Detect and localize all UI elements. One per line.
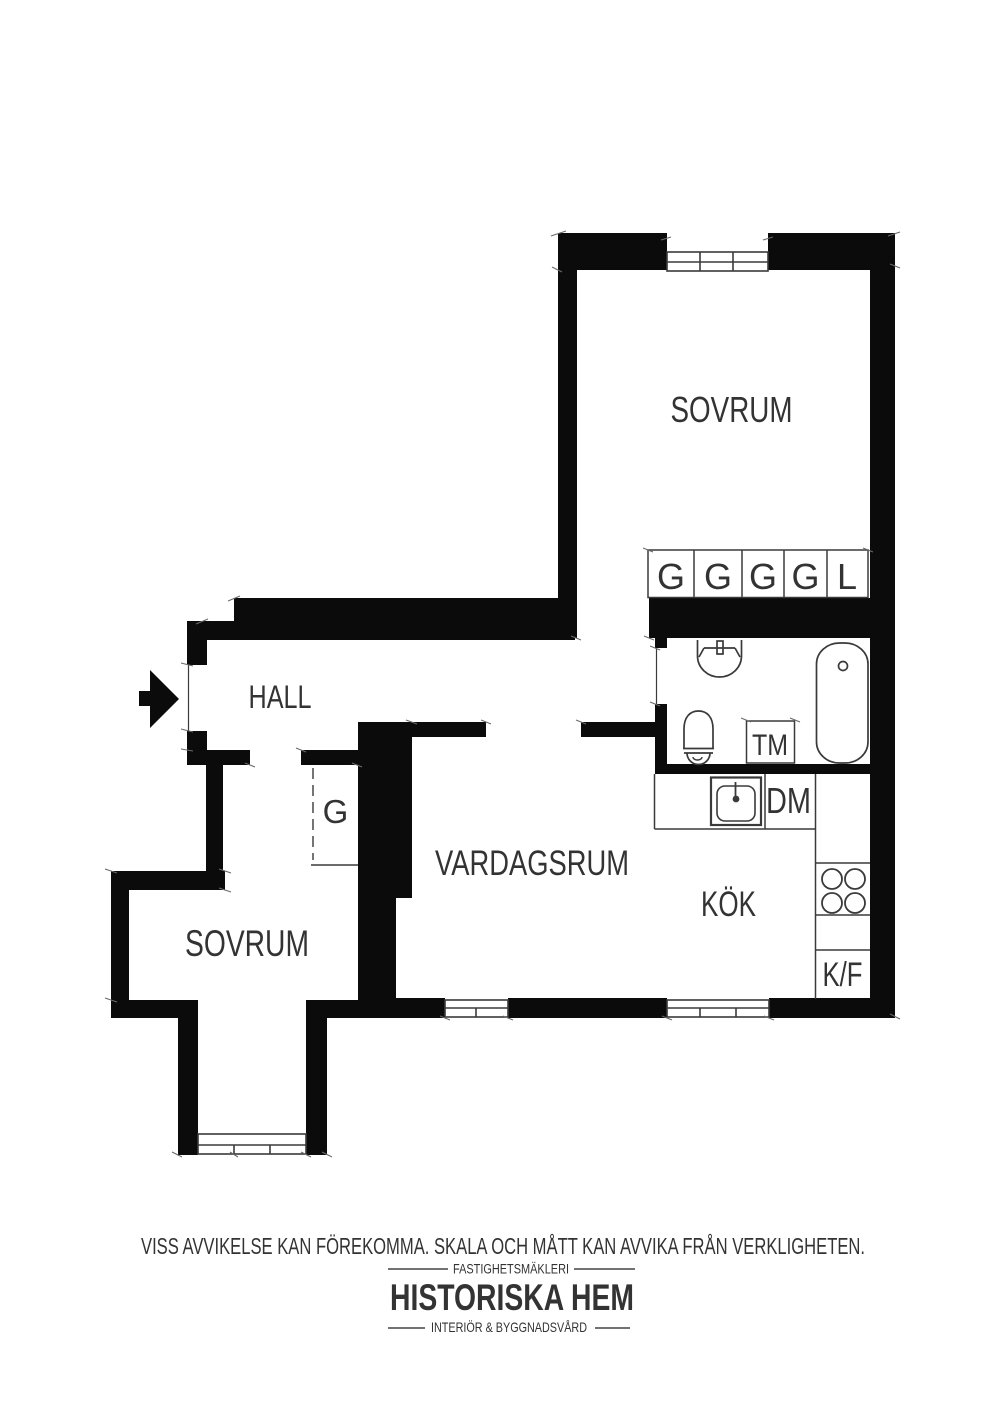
svg-text:L: L (837, 556, 857, 597)
svg-text:INTERIÖR & BYGGNADSVÅRD: INTERIÖR & BYGGNADSVÅRD (431, 1318, 587, 1335)
svg-text:SOVRUM: SOVRUM (671, 389, 793, 430)
svg-text:VARDAGSRUM: VARDAGSRUM (435, 844, 629, 883)
svg-text:G: G (791, 556, 819, 597)
svg-text:G: G (704, 556, 732, 597)
svg-text:DM: DM (766, 780, 811, 821)
svg-text:VISS AVVIKELSE KAN FÖREKOMMA.: VISS AVVIKELSE KAN FÖREKOMMA. SKALA OCH … (141, 1232, 865, 1259)
svg-text:G: G (749, 556, 777, 597)
svg-text:SOVRUM: SOVRUM (185, 923, 309, 964)
svg-text:G: G (323, 793, 349, 830)
svg-text:HALL: HALL (249, 679, 312, 715)
svg-text:G: G (657, 556, 685, 597)
svg-text:KÖK: KÖK (701, 885, 756, 924)
svg-text:HISTORISKA HEM: HISTORISKA HEM (390, 1276, 634, 1318)
svg-text:K/F: K/F (823, 956, 863, 994)
svg-text:TM: TM (752, 729, 788, 762)
svg-text:FASTIGHETSMÄKLERI: FASTIGHETSMÄKLERI (453, 1262, 569, 1277)
